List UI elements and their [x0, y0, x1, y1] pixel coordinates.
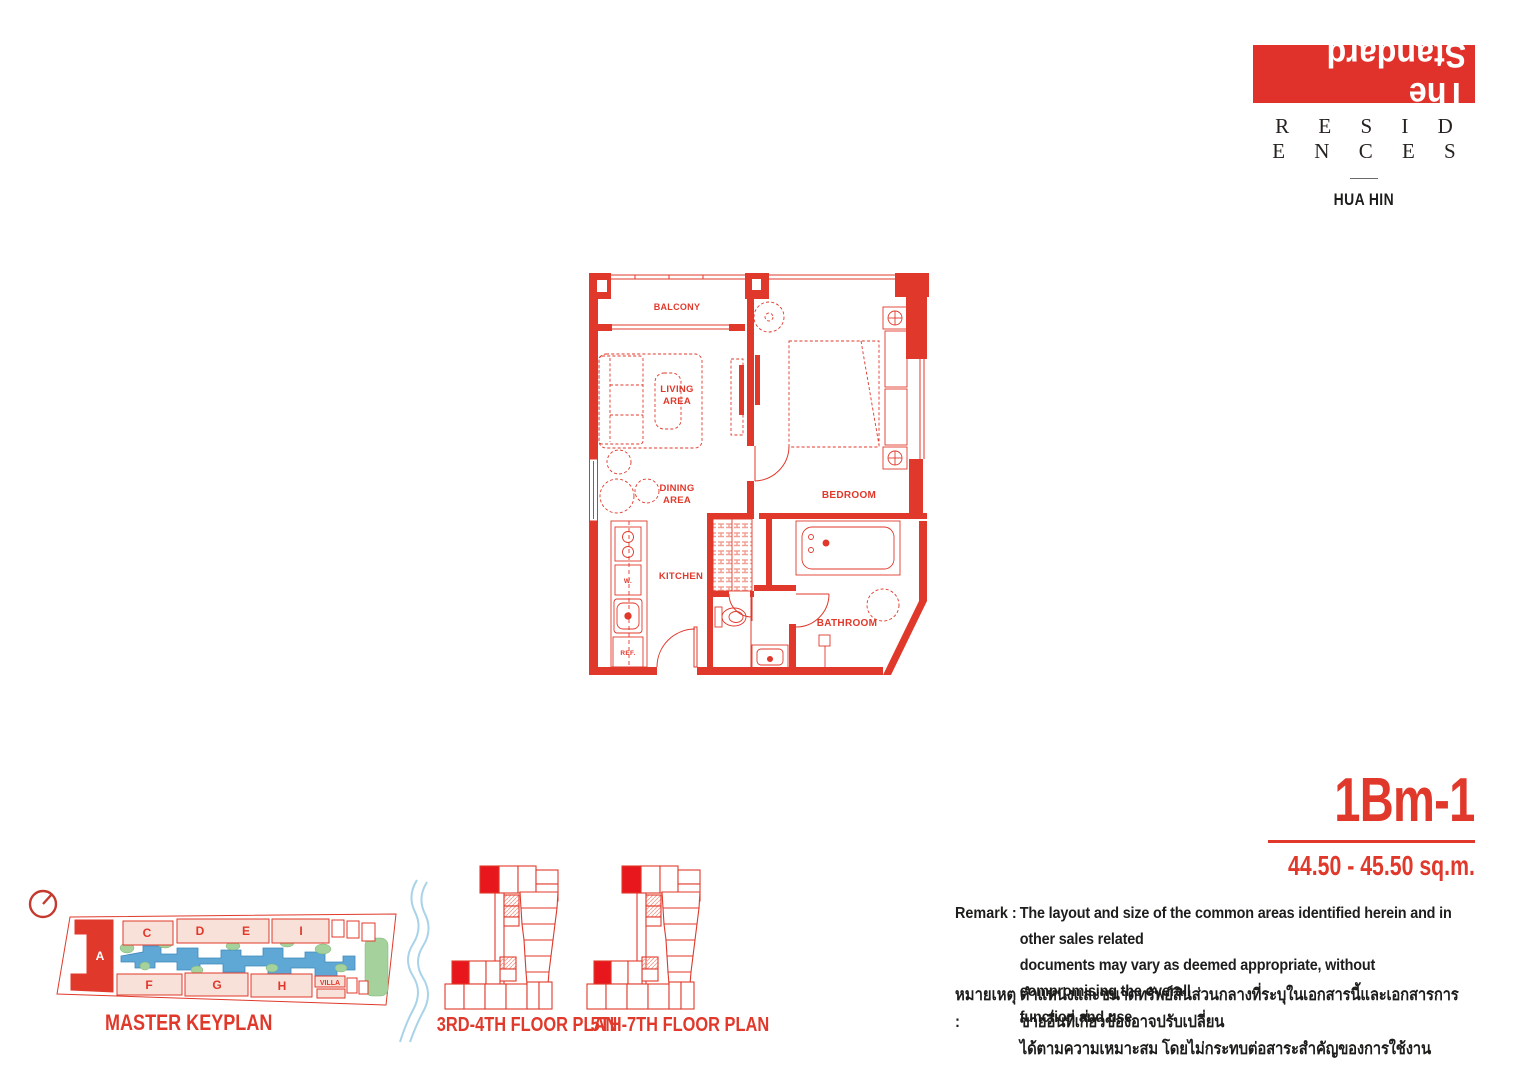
entry-door-leaf — [694, 627, 697, 667]
toilet-door-swing — [729, 594, 752, 617]
logo-text: The Standard — [1262, 34, 1466, 114]
sofa — [599, 356, 643, 444]
entry-door-swing — [657, 629, 695, 667]
walls — [589, 273, 929, 675]
label-living-2: AREA — [663, 396, 691, 407]
remark-th: หมายเหตุ : ตำแหน่งและขนาดทรัพย์สินส่วนกล… — [955, 982, 1473, 1063]
dining-table — [600, 450, 659, 513]
label-building-e: E — [242, 924, 250, 938]
label-fridge: REF. — [620, 650, 635, 657]
vanity-sink — [752, 645, 788, 669]
label-dining-1: DINING — [659, 483, 694, 494]
label-living-1: LIVING — [660, 384, 693, 395]
remark-th-label: หมายเหตุ : — [955, 982, 1020, 1063]
north-arrow-icon — [30, 891, 56, 917]
label-building-g: G — [212, 978, 221, 992]
label-bathroom: BATHROOM — [817, 618, 878, 629]
unit-floor-plan: BALCONY LIVING AREA DINING AREA KITCHEN … — [589, 269, 941, 683]
residences-wordmark: R E S I D E N C E S — [1253, 114, 1475, 164]
label-bedroom: BEDROOM — [822, 490, 876, 501]
ceiling-lamp — [754, 302, 784, 332]
location-label: HUA HIN — [1253, 190, 1475, 210]
unit-title-block: 1Bm-1 44.50 - 45.50 sq.m. — [1229, 770, 1475, 880]
label-building-d: D — [196, 924, 205, 938]
label-washer: W. — [624, 578, 632, 585]
logo-divider — [1350, 178, 1378, 179]
label-building-c: C — [143, 926, 152, 940]
bedside-shelves — [883, 307, 907, 469]
column-holes — [597, 279, 761, 292]
remark-th-text: ตำแหน่งและขนาดทรัพย์สินส่วนกลางที่ระบุใน… — [1020, 982, 1473, 1063]
the-standard-logo: The Standard — [1253, 45, 1475, 103]
label-villa: VILLA — [320, 980, 340, 987]
floor-drain — [819, 635, 830, 667]
label-dining-2: AREA — [663, 495, 691, 506]
bathtub — [796, 521, 900, 575]
label-building-i: I — [299, 924, 302, 938]
keyplan-3rd-4th-label: 3RD-4TH FLOOR PLAN — [417, 1014, 577, 1037]
bedroom-door-swing — [755, 446, 789, 481]
label-building-h: H — [278, 979, 287, 993]
wardrobe — [713, 519, 752, 591]
unit-area: 44.50 - 45.50 sq.m. — [1288, 852, 1475, 880]
label-kitchen: KITCHEN — [659, 571, 703, 582]
unit-title-rule — [1268, 840, 1475, 843]
master-keyplan-title: MASTER KEYPLAN — [105, 1010, 309, 1036]
toilet — [715, 607, 746, 627]
keyplan-3rd-4th — [440, 862, 575, 1012]
kitchen-counter — [611, 521, 647, 667]
label-balcony: BALCONY — [654, 302, 701, 312]
shower — [867, 589, 899, 621]
label-building-a: A — [96, 949, 105, 963]
label-building-f: F — [145, 978, 152, 992]
stove — [615, 527, 641, 561]
bed — [789, 341, 879, 447]
keyplan-5th-7th — [582, 862, 717, 1012]
building-de — [177, 919, 269, 943]
brand-block: The Standard R E S I D E N C E S HUA HIN — [1253, 45, 1475, 210]
master-keyplan: A C D E I F G H VILLA — [25, 886, 405, 1018]
unit-code: 1Bm-1 — [1335, 770, 1475, 832]
keyplan-5th-7th-label: 5TH-7TH FLOOR PLAN — [571, 1014, 731, 1037]
windows-rails — [590, 275, 925, 667]
fixtures — [611, 307, 907, 669]
